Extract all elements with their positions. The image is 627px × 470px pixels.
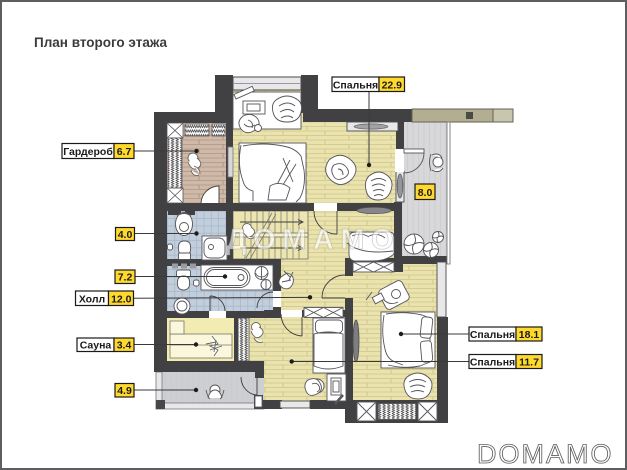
svg-text:22.9: 22.9 [382,80,403,92]
svg-text:11.7: 11.7 [519,357,539,369]
svg-text:Сауна: Сауна [80,340,112,352]
svg-text:7.2: 7.2 [118,272,133,284]
svg-text:12.0: 12.0 [111,293,132,305]
svg-text:Спальня: Спальня [470,357,515,369]
svg-text:4.9: 4.9 [117,385,132,397]
svg-text:ДОМАМО: ДОМАМО [226,224,400,256]
svg-text:Холл: Холл [79,293,105,305]
svg-text:План второго этажа: План второго этажа [34,35,168,50]
svg-text:4.0: 4.0 [118,229,133,241]
svg-text:8.0: 8.0 [418,187,433,199]
svg-text:18.1: 18.1 [519,329,540,341]
svg-text:6.7: 6.7 [117,146,132,158]
svg-text:3.4: 3.4 [117,340,132,352]
svg-text:Спальня: Спальня [333,80,378,92]
svg-text:Спальня: Спальня [470,329,515,341]
svg-text:Гардероб: Гардероб [63,146,113,158]
svg-text:DOMAMO: DOMAMO [477,439,614,469]
